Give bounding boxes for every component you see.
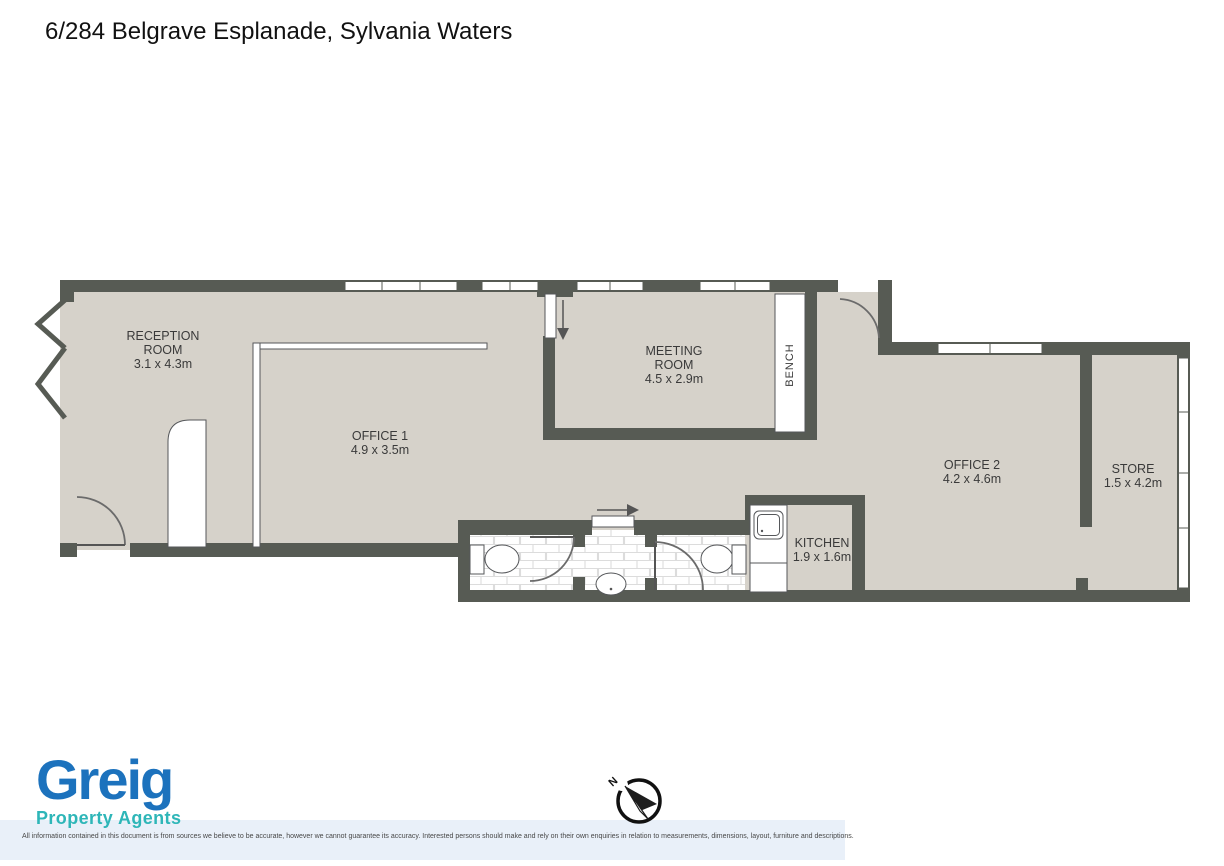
toilet-right-cistern xyxy=(732,545,746,574)
room-label-office2: OFFICE 2 4.2 x 4.6m xyxy=(943,458,1001,486)
compass-icon: N xyxy=(606,775,660,822)
toilet-left-bowl xyxy=(485,545,519,573)
meeting-room-right-wall xyxy=(805,292,817,440)
room-label-meeting: MEETING ROOM 4.5 x 2.9m xyxy=(645,344,703,386)
basin-tap xyxy=(610,588,613,591)
greig-logo: Greig Property Agents xyxy=(36,752,181,829)
logo-tagline: Property Agents xyxy=(36,808,181,829)
glass-partition-horizontal xyxy=(253,343,487,349)
basin xyxy=(596,573,626,595)
toilet-right-bowl xyxy=(701,545,733,573)
glass-partition-vertical xyxy=(253,343,260,547)
room-dims: 4.2 x 4.6m xyxy=(943,472,1001,486)
kitchen-top-wall xyxy=(745,495,865,505)
store-partition-wall xyxy=(1080,355,1092,527)
sink-drain xyxy=(761,530,763,532)
room-dims: 4.9 x 3.5m xyxy=(351,443,409,457)
room-dims: 3.1 x 4.3m xyxy=(127,357,200,371)
rear-entry-threshold xyxy=(592,516,634,527)
disclaimer-text: All information contained in this docume… xyxy=(22,833,922,840)
entry-sliding-panel xyxy=(545,294,556,338)
floorplan-svg: BENCH N xyxy=(0,0,1224,866)
toilet-left-cistern xyxy=(470,545,484,574)
room-label-office1: OFFICE 1 4.9 x 3.5m xyxy=(351,429,409,457)
compass-needle xyxy=(625,786,657,811)
room-dims: 1.5 x 4.2m xyxy=(1104,476,1162,490)
room-dims: 4.5 x 2.9m xyxy=(645,372,703,386)
floorplan-page: 6/284 Belgrave Esplanade, Sylvania Water… xyxy=(0,0,1224,866)
logo-name: Greig xyxy=(36,752,181,808)
reception-counter xyxy=(168,420,206,547)
room-dims: 1.9 x 1.6m xyxy=(793,550,851,564)
room-label-store: STORE 1.5 x 4.2m xyxy=(1104,462,1162,490)
meeting-room-left-wall xyxy=(543,336,555,440)
room-label-reception: RECEPTION ROOM 3.1 x 4.3m xyxy=(127,329,200,371)
kitchen-right-wall xyxy=(852,495,865,592)
room-label-kitchen: KITCHEN 1.9 x 1.6m xyxy=(793,536,851,564)
bottom-outer-wall xyxy=(458,590,1190,602)
bench-label: BENCH xyxy=(784,343,796,387)
